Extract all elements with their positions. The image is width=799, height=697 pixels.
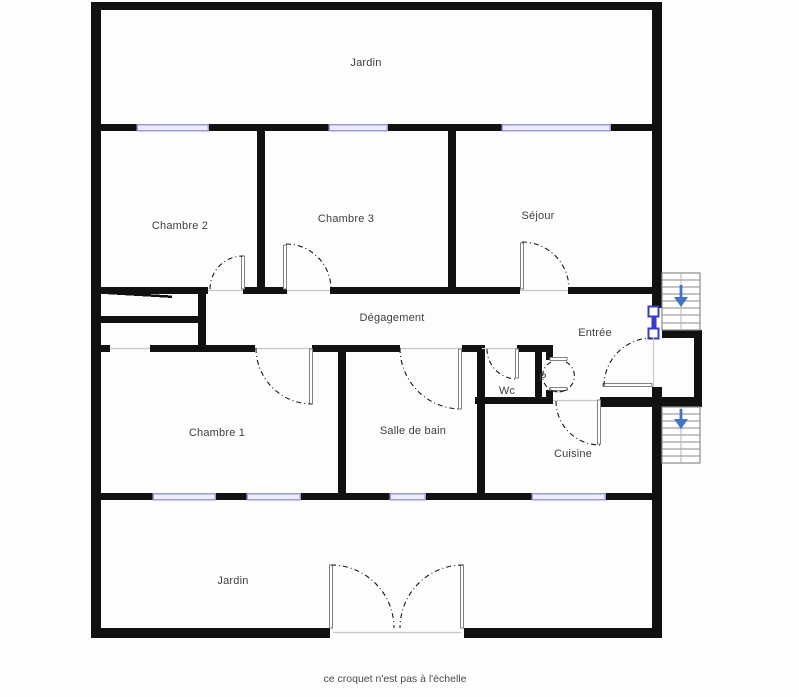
floorplan-drawing (0, 0, 799, 697)
door-leaf-sejour (521, 243, 524, 289)
door-leaf-cuisine (598, 400, 601, 444)
wall-outer-right-upper (652, 2, 662, 308)
room-label-jardin-bottom: Jardin (217, 575, 248, 587)
front-door-blue-marker (649, 307, 659, 339)
arc-garden-left (331, 565, 394, 628)
room-label-salle-de-bain: Salle de bain (380, 425, 446, 437)
door-leaf-placard-bottom (550, 388, 567, 391)
wall-outer-bottom-left (91, 628, 330, 638)
room-label-placard: P (539, 372, 547, 384)
door-leaf-garden-right (461, 565, 464, 628)
window-chambre3 (329, 125, 387, 131)
wall-closet-right (198, 294, 206, 352)
arc-garden-right (400, 565, 463, 628)
wall-chambre1-sdb (338, 345, 346, 500)
arc-chambre1 (256, 348, 312, 404)
arc-front-door (604, 338, 652, 386)
arc-sejour (522, 242, 569, 289)
wall-porch-bottom (655, 397, 702, 407)
stairs-lower (662, 407, 700, 463)
window-chambre1-a (153, 494, 215, 500)
scale-disclaimer-caption: ce croquet n'est pas à l'échelle (324, 673, 467, 685)
wall-outer-top (91, 2, 662, 10)
wall-outer-right-lower (652, 387, 662, 638)
wall-chambre2-chambre3 (257, 131, 265, 287)
door-leaf-chambre3 (284, 245, 287, 289)
wall-outer-bottom-right (464, 628, 662, 638)
arc-wc (487, 349, 517, 379)
room-label-wc: Wc (499, 385, 515, 397)
window-sejour (502, 125, 610, 131)
room-label-sejour: Séjour (522, 210, 555, 222)
room-label-degagement: Dégagement (360, 312, 425, 324)
arc-chambre2 (210, 256, 243, 289)
floorplan-page: Jardin Chambre 2 Chambre 3 Séjour Dégage… (0, 0, 799, 697)
window-cuisine (532, 494, 605, 500)
door-leaves (242, 243, 653, 628)
door-leaf-wc (516, 349, 519, 378)
window-chambre1-b (247, 494, 300, 500)
wall-chambre3-sejour (448, 131, 456, 287)
door-leaf-chambre1 (310, 349, 313, 404)
door-leaf-front (603, 384, 652, 387)
window-chambre2 (137, 125, 208, 131)
door-leaf-garden-left (330, 565, 333, 628)
door-leaf-chambre2 (242, 256, 245, 289)
room-label-chambre3: Chambre 3 (318, 213, 374, 225)
room-label-cuisine: Cuisine (554, 448, 592, 460)
room-label-jardin-top: Jardin (350, 57, 381, 69)
door-leaf-placard-top (550, 358, 567, 361)
window-sdb (390, 494, 425, 500)
arc-sdb (400, 348, 461, 409)
arc-chambre3 (286, 244, 331, 289)
wall-porch-right (694, 330, 702, 407)
wall-sdb-wc-cuisine (477, 345, 485, 500)
arc-cuisine (556, 401, 600, 445)
door-leaf-sdb (459, 349, 462, 409)
room-label-chambre2: Chambre 2 (152, 220, 208, 232)
stairs-upper (662, 273, 700, 330)
room-label-chambre1: Chambre 1 (189, 427, 245, 439)
threshold-lines (110, 291, 654, 633)
room-label-entree: Entrée (578, 327, 612, 339)
wall-placard-stub-bottom (546, 390, 553, 404)
